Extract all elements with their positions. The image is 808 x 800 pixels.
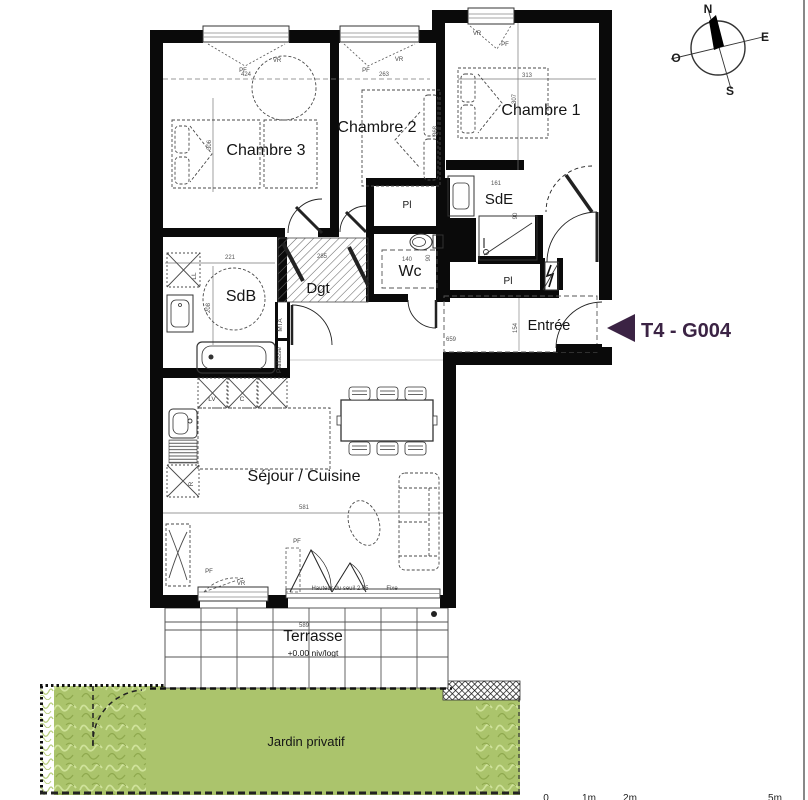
water-heater	[543, 262, 559, 290]
wall-segment	[535, 215, 543, 264]
dim-221: 221	[225, 255, 236, 261]
wall-segment	[330, 43, 339, 233]
floor-plan-drawing: T4 - G004Chambre 3Chambre 2Chambre 1SdBS…	[0, 0, 808, 800]
side-table	[343, 496, 386, 549]
dim-313: 313	[522, 73, 533, 79]
window-label-pf-bay: PF	[293, 539, 301, 545]
hedge-left	[54, 686, 146, 795]
wall-segment	[275, 338, 290, 341]
wall-segment	[445, 10, 469, 23]
compass-o: O	[671, 51, 680, 65]
fridge-square	[167, 465, 199, 497]
compass-needle-icon	[709, 15, 724, 50]
wall-segment	[289, 30, 340, 43]
dim-306: 306	[207, 139, 213, 150]
room-label-pl-bottom: Pl	[504, 276, 513, 287]
dim-581: 581	[299, 505, 310, 511]
window-label-fixe: Fixe	[386, 586, 398, 592]
wall-segment	[163, 228, 285, 237]
dim-285: 285	[317, 254, 328, 260]
dim-368: 368	[433, 125, 439, 136]
wall-segment	[443, 352, 456, 608]
room-label-sejour-cuisine: Séjour / Cuisine	[248, 468, 361, 485]
dim-90-wc: 90	[426, 254, 432, 261]
bed-chambre-2	[362, 90, 440, 186]
plan-title: T4 - G004	[641, 320, 732, 342]
window-label-pf-ch2: PF	[362, 68, 370, 74]
kitchen-appliance-squares	[198, 378, 287, 408]
window-chambre-1	[468, 8, 514, 24]
fixture-label-ll: LL	[191, 272, 198, 280]
plant-box	[166, 524, 190, 586]
wall-segment	[513, 10, 612, 23]
window-label-pf-ch1: PF	[501, 42, 509, 48]
room-label-sde: SdE	[485, 191, 513, 208]
room-label-pl-top: Pl	[403, 200, 412, 211]
wall-segment	[440, 218, 476, 262]
compass-e: E	[761, 30, 769, 44]
wall-segment	[366, 294, 408, 302]
fixture-label-mta: MTA	[277, 318, 284, 332]
dim-307: 307	[512, 93, 518, 104]
room-label-entree: Entrée	[528, 318, 571, 334]
scale-1m: 1m	[582, 793, 596, 800]
round-furniture-chambre-3	[252, 56, 316, 120]
room-label-dgt: Dgt	[306, 280, 330, 297]
window-label-vr-ch2: VR	[395, 57, 404, 63]
window-label-pf-sejour-left: PF	[205, 569, 213, 575]
room-label-sdb: SdB	[226, 288, 256, 305]
window-label-vr-ch1: VR	[473, 31, 482, 37]
dim-154: 154	[513, 322, 519, 333]
jardin-outer-hedge-texture	[40, 686, 56, 795]
window-sejour-left	[198, 587, 268, 601]
dim-589: 589	[299, 623, 310, 629]
scale-0: 0	[543, 793, 549, 800]
wall-segment	[540, 258, 545, 290]
chambre-3-door-leaf	[296, 207, 322, 233]
chambre-2-door-leaf	[346, 212, 366, 232]
drain-icon	[431, 611, 437, 617]
dim-140: 140	[402, 257, 413, 263]
wall-segment	[150, 30, 163, 608]
wall-segment	[446, 290, 559, 298]
fixture-label-r: R	[188, 481, 195, 486]
terrasse-level-note: +0.00 niv/logt	[288, 648, 339, 658]
floor-plan-page: T4 - G004Chambre 3Chambre 2Chambre 1SdBS…	[0, 0, 808, 800]
shower	[479, 216, 537, 260]
window-label-seuil: Hauteur du seuil 2.05	[311, 586, 369, 592]
washbasin-sdb	[167, 295, 193, 332]
gravel-crosshatch-strip	[443, 681, 520, 700]
sde-door-arc	[547, 212, 597, 262]
dim-659: 659	[446, 337, 457, 343]
wall-segment	[446, 160, 524, 170]
kitchen-drainboard	[169, 440, 197, 463]
sdb-door-arc	[292, 305, 332, 345]
compass-n: N	[704, 2, 713, 16]
fixture-label-c: C	[240, 396, 245, 403]
washbasin-sde	[448, 176, 474, 216]
wall-segment	[366, 178, 444, 186]
hedge-right	[476, 697, 520, 795]
dim-90-sde: 90	[513, 212, 519, 219]
window-chambre-3	[203, 26, 289, 42]
wall-segment	[366, 226, 444, 234]
washing-machine-sdb	[167, 253, 200, 287]
room-label-wc: Wc	[398, 263, 421, 280]
window-chambre-2	[340, 26, 419, 42]
wall-segment	[266, 595, 288, 608]
room-label-chambre-2: Chambre 2	[337, 119, 416, 136]
kitchen-counter-outline	[198, 408, 330, 469]
scale-2m: 2m	[623, 793, 637, 800]
fixture-label-paillasse: Paillasse	[276, 347, 283, 373]
entrance-door-leaf	[556, 344, 602, 352]
wall-segment	[440, 595, 456, 608]
wc-door-arc	[408, 300, 436, 328]
room-label-chambre-3: Chambre 3	[226, 142, 305, 159]
walls	[150, 10, 612, 608]
wall-segment	[599, 23, 612, 300]
dim-263: 263	[379, 72, 390, 78]
unit-arrow-icon	[607, 314, 635, 342]
room-label-terrasse: Terrasse	[283, 628, 342, 645]
window-label-vr-sejour-left: VR	[237, 581, 246, 587]
entree-zone-dashed	[444, 296, 597, 352]
fixture-label-lv: LV	[208, 396, 216, 403]
room-label-jardin-privatif: Jardin privatif	[267, 734, 345, 749]
dim-208: 208	[206, 302, 212, 313]
kitchen-sink	[169, 409, 197, 438]
wall-segment	[150, 595, 200, 608]
window-label-vr-ch3: VR	[273, 58, 282, 64]
compass-s: S	[726, 84, 734, 98]
window-swing-ch2	[344, 44, 415, 66]
sofa	[399, 473, 439, 570]
wall-segment	[455, 352, 612, 365]
scale-5m: 5m	[768, 793, 782, 800]
compass-rose	[671, 9, 767, 89]
dining-table	[337, 400, 437, 441]
dim-161: 161	[491, 181, 502, 187]
window-label-pf-ch3: PF	[239, 68, 247, 74]
chambre-1-door-leaf	[566, 175, 592, 212]
